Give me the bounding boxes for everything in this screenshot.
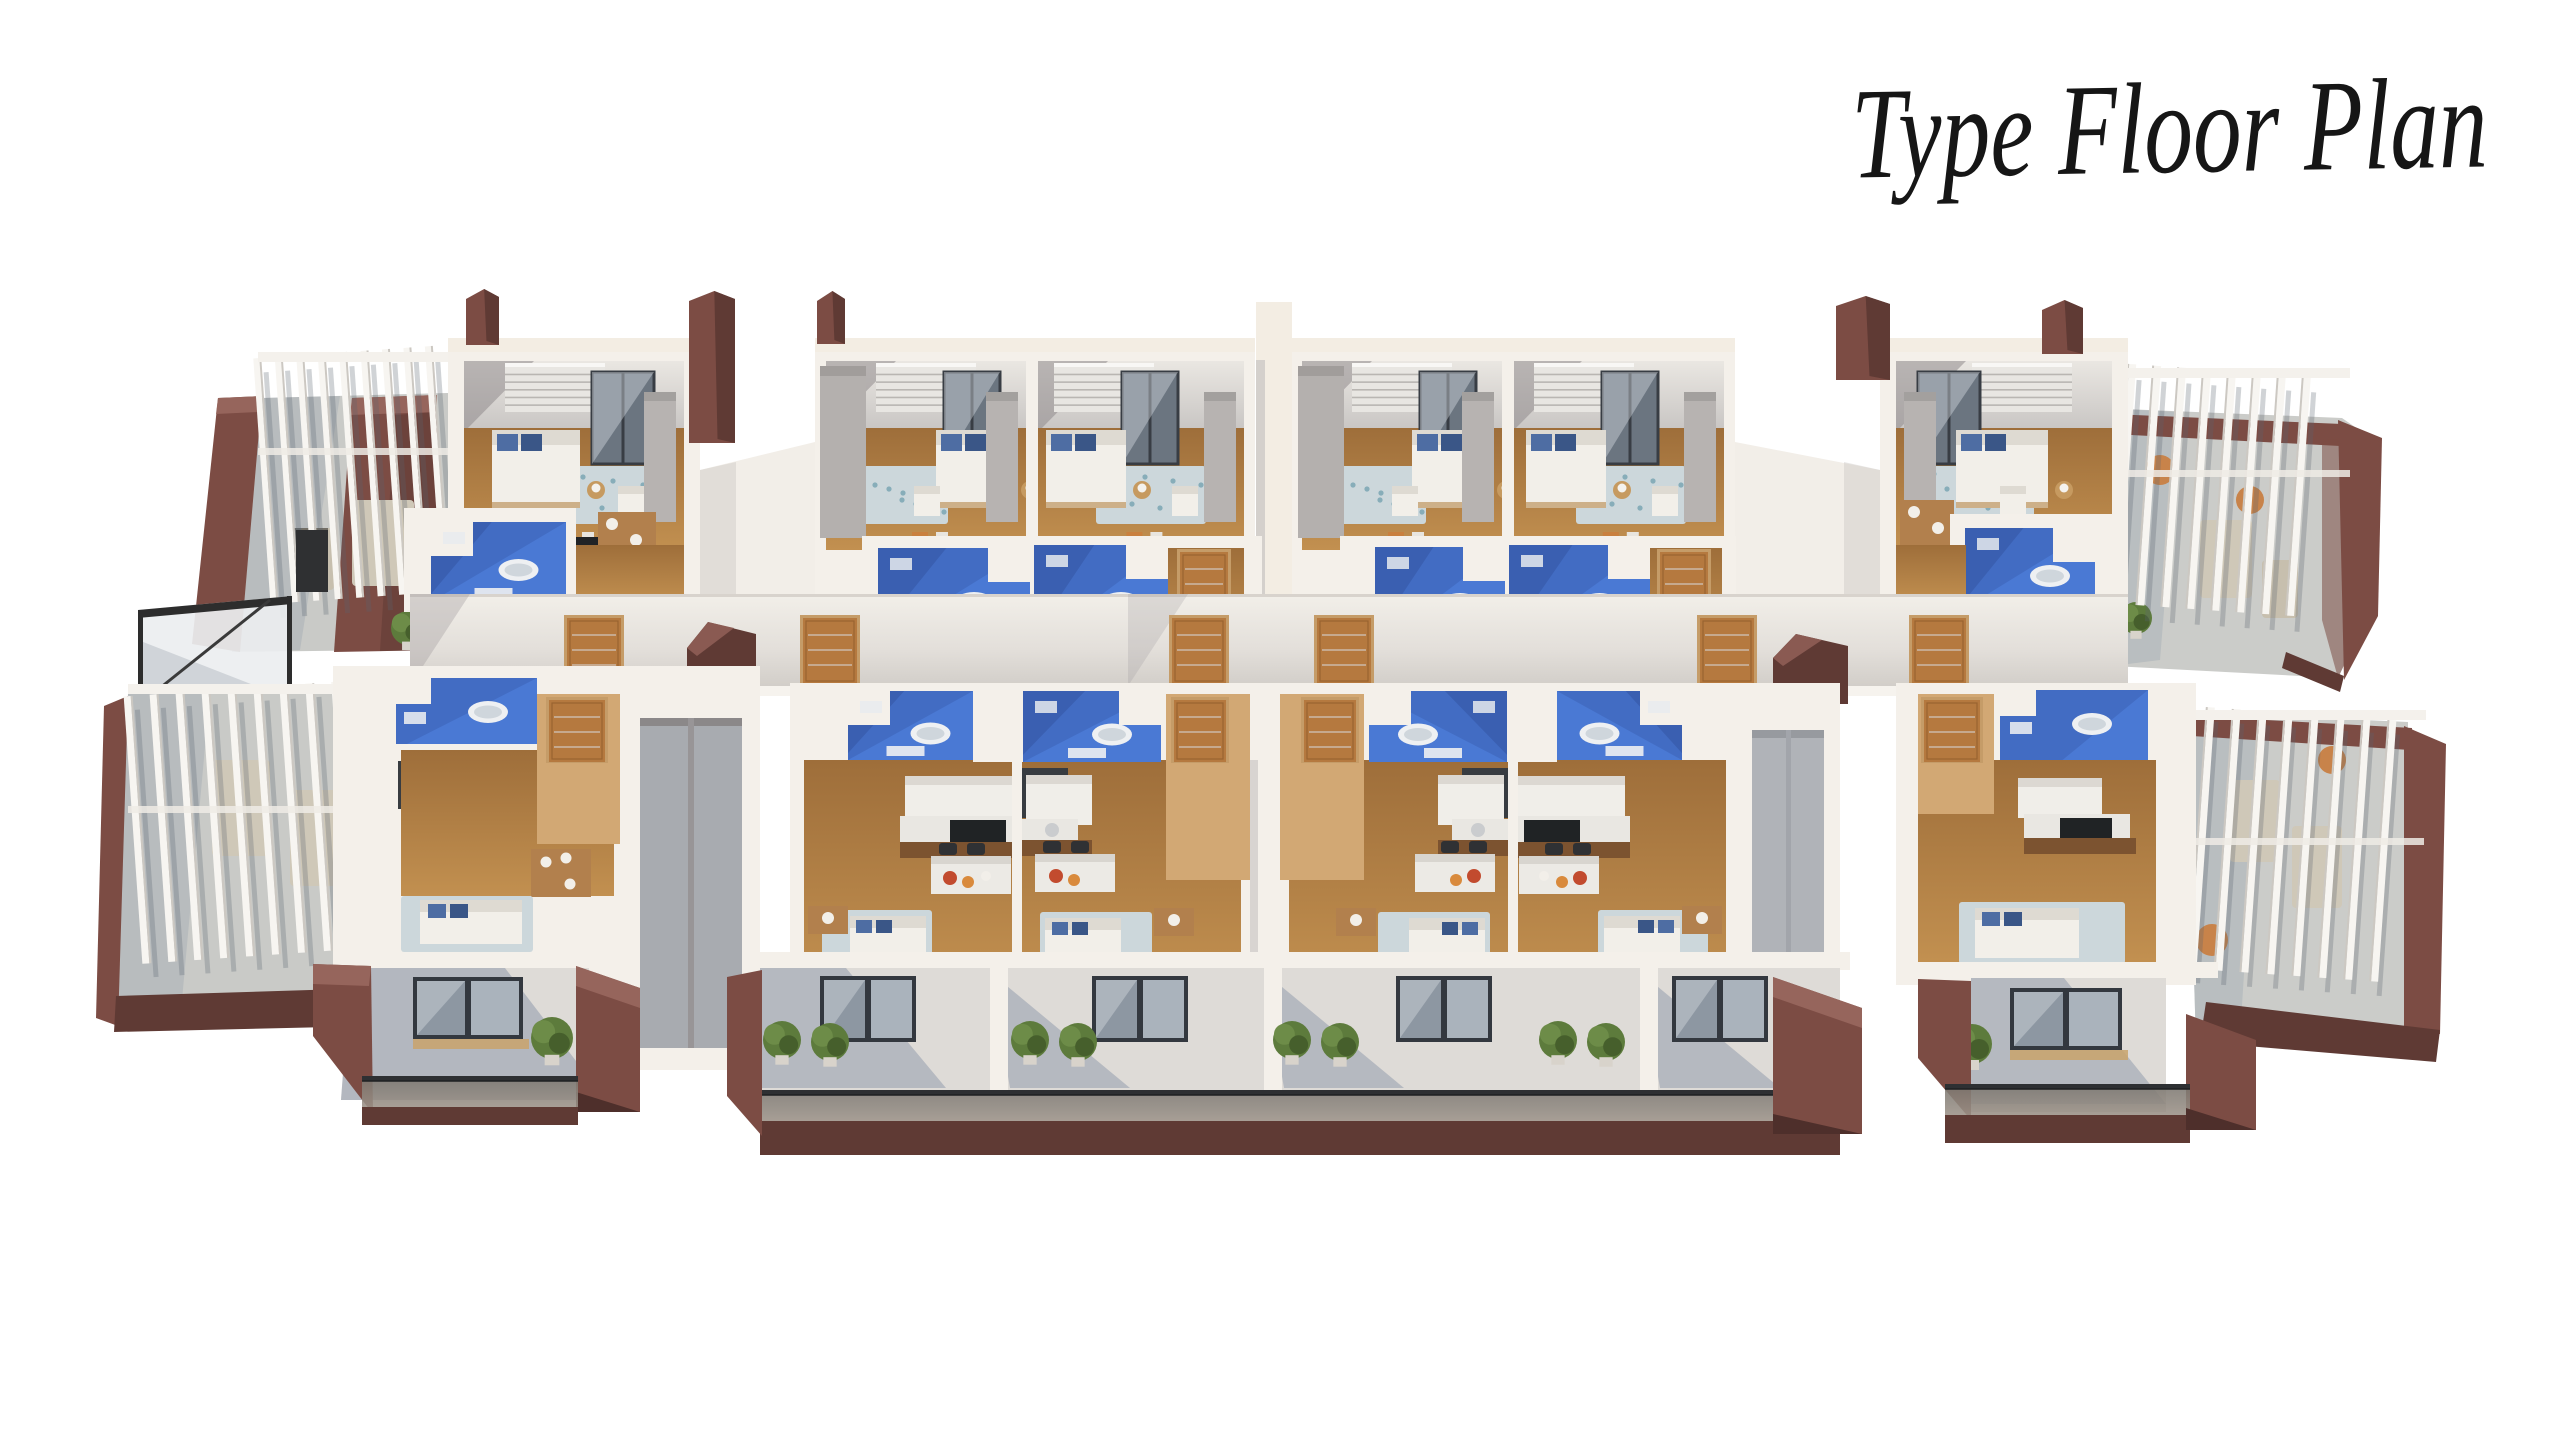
svg-text:Type Floor Plan: Type Floor Plan — [1850, 51, 2488, 206]
